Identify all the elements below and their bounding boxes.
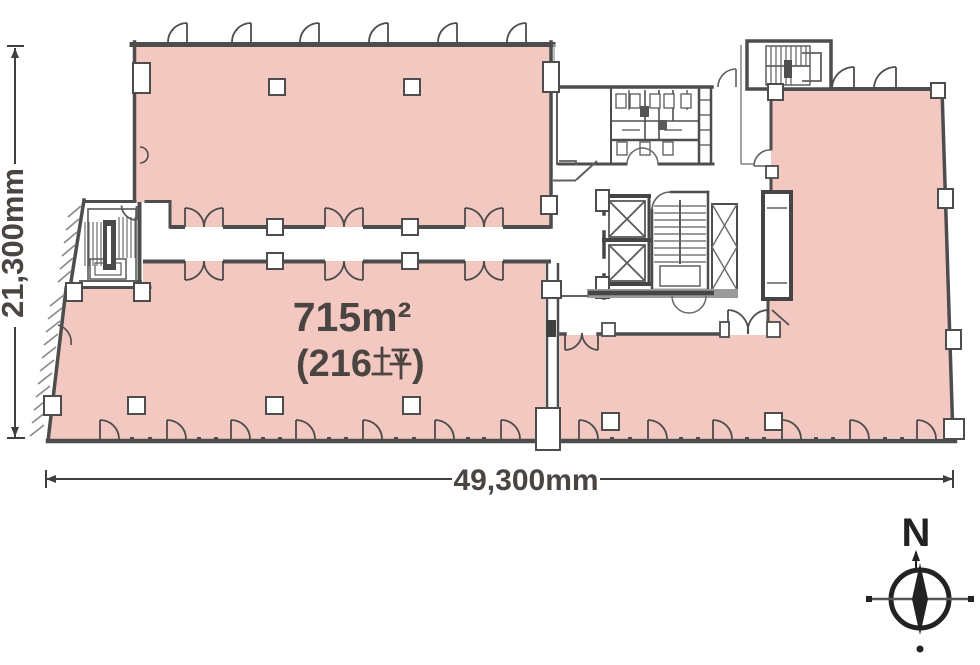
svg-text:49,300mm: 49,300mm: [453, 464, 598, 497]
svg-text:): ): [412, 343, 425, 385]
svg-text:21,300mm: 21,300mm: [0, 168, 30, 318]
svg-text:715m²: 715m²: [293, 294, 412, 340]
svg-text:(216: (216: [296, 343, 372, 385]
svg-text:N: N: [902, 511, 931, 555]
